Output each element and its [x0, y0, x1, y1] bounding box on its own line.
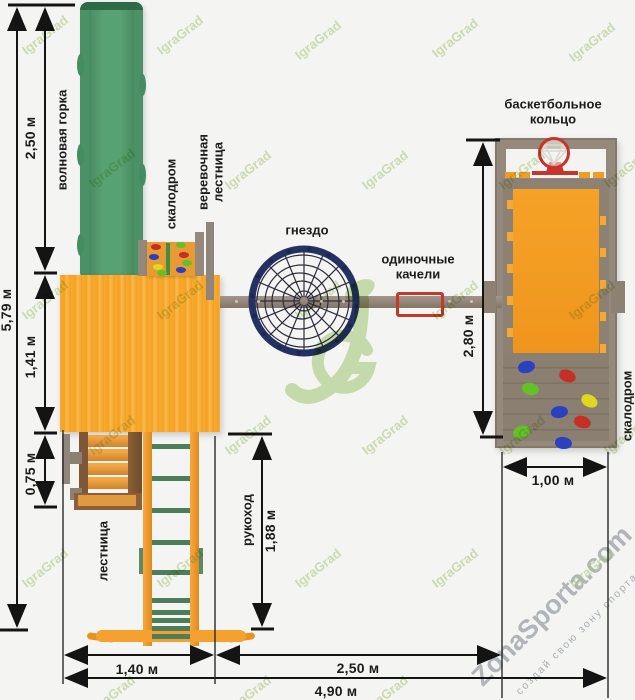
playground-plan-diagram: волновая горка скалодром веревочная лест… — [0, 0, 635, 700]
stairs-post — [62, 434, 70, 484]
tower-crossbar — [502, 179, 610, 189]
beam-bolt — [342, 300, 345, 303]
ramp-tab — [507, 328, 513, 337]
monkey-bars-rung — [152, 626, 190, 631]
beam-connector — [611, 281, 625, 313]
stairs-bottom-tread — [78, 495, 136, 506]
rope-ladder-pole — [206, 222, 214, 300]
ramp-tab — [600, 248, 606, 257]
backboard-bar — [532, 171, 578, 175]
igragrad-watermark: IgraGrad — [292, 17, 344, 62]
beam-bolt — [320, 300, 323, 303]
nest-label: гнездо — [285, 224, 328, 239]
tower-rail — [599, 189, 609, 353]
climbing-board-post — [195, 232, 204, 276]
igragrad-watermark: IgraGrad — [222, 147, 274, 192]
dim-total-width-label: 4,90 м — [315, 684, 358, 700]
climbing-hold — [182, 260, 192, 266]
climbing-hold — [176, 267, 186, 273]
climbing-hold — [179, 252, 189, 258]
slide-wave-bump — [77, 54, 84, 76]
basketball-label: баскетбольное кольцо — [481, 97, 626, 126]
backboard-dash — [593, 172, 604, 178]
wave-slide-label: волновая горка — [56, 90, 71, 191]
backboard-dash — [579, 172, 590, 178]
monkey-bars-label: рукоход — [241, 494, 256, 546]
climbing-wall-left-label: скалодром — [165, 159, 180, 229]
igragrad-watermark: IgraGrad — [566, 19, 618, 64]
climbing-hold — [149, 254, 159, 260]
climbing-hold — [176, 242, 186, 248]
wave-slide — [80, 2, 143, 276]
monkey-bars-rail — [143, 432, 152, 646]
stairs-tread — [88, 463, 128, 475]
slide-bed — [89, 9, 134, 276]
slide-wave-bump — [139, 74, 146, 96]
slide-wave-bump — [139, 164, 146, 186]
ramp-tab — [600, 280, 606, 289]
monkey-bars-rail — [190, 432, 199, 646]
igragrad-watermark: IgraGrad — [292, 545, 344, 590]
monkey-bars-rung — [152, 508, 190, 513]
dim-tower-depth-label: 2,80 м — [461, 315, 477, 358]
single-swing — [396, 292, 444, 317]
beam-connector — [484, 281, 496, 313]
zonasporta-watermark: ZonaSporta.com — [466, 520, 635, 693]
tower-ramp — [513, 189, 599, 353]
monkey-bars-rung — [152, 476, 190, 481]
ramp-tab — [507, 264, 513, 273]
beam-bolt — [448, 300, 451, 303]
dim-slide-label: 2,50 м — [23, 117, 39, 160]
monkey-bars-rung — [152, 610, 190, 615]
backboard-dash — [519, 172, 530, 178]
ramp-tab — [507, 296, 513, 305]
ramp-tab — [600, 312, 606, 321]
ramp-tab — [507, 232, 513, 241]
basketball-hoop — [536, 135, 572, 171]
monkey-bars-bracket — [139, 548, 143, 574]
monkey-bars-bracket — [199, 548, 203, 574]
monkey-bars-rung — [152, 540, 190, 545]
igragrad-watermark: IgraGrad — [429, 15, 481, 60]
igragrad-watermark: IgraGrad — [19, 12, 71, 57]
beam-bolt — [257, 300, 260, 303]
ramp-tab — [600, 344, 606, 353]
stairs-label: лестница — [97, 521, 112, 581]
slide-wave-bump — [77, 234, 84, 256]
ramp-tab — [507, 200, 513, 209]
beam-bolt — [235, 300, 238, 303]
stairs-tread — [88, 435, 128, 447]
monkey-bars-rung — [152, 444, 190, 449]
slide-top-cap — [80, 2, 143, 10]
slide-wave-bump — [77, 144, 84, 166]
monkey-bars-rung — [152, 598, 190, 603]
monkey-bars-rung — [152, 570, 190, 575]
climbing-board-post — [138, 240, 147, 276]
platform — [60, 275, 220, 432]
dim-monkey-bars-label: 1,88 м — [263, 510, 279, 553]
monkey-bars-rung — [152, 634, 190, 639]
beam-bolt — [470, 300, 473, 303]
zonasporta-tagline-watermark: создай свою зону спорта — [514, 571, 635, 698]
igragrad-watermark: IgraGrad — [19, 545, 71, 590]
climbing-hold — [157, 270, 167, 276]
dim-swing-span-label: 2,50 м — [337, 661, 380, 677]
igragrad-watermark: IgraGrad — [429, 545, 481, 590]
stairs-tread — [88, 477, 128, 489]
dim-tower-width-label: 1,00 м — [532, 473, 575, 489]
igragrad-watermark: IgraGrad — [154, 12, 206, 57]
stairs-block — [70, 452, 82, 464]
single-swing-label: одиночные качели — [362, 252, 474, 281]
climbing-wall-right-label: скалодром — [621, 371, 635, 441]
rope-ladder-label: веревочная лестница — [196, 130, 225, 214]
climbing-hold — [151, 244, 161, 250]
igragrad-watermark: IgraGrad — [222, 672, 274, 700]
dim-total-height-label: 5,79 м — [0, 289, 15, 332]
monkey-bars-rung — [152, 618, 190, 623]
dim-stairs-depth-label: 0,75 м — [23, 453, 39, 496]
backboard-dash — [505, 172, 516, 178]
stairs-tread — [88, 449, 128, 461]
dim-base-width-label: 1,40 м — [116, 662, 159, 678]
climbing-board-strip — [166, 243, 170, 275]
igragrad-watermark: IgraGrad — [222, 412, 274, 457]
igragrad-watermark: IgraGrad — [359, 412, 411, 457]
igragrad-watermark: IgraGrad — [359, 147, 411, 192]
dim-platform-depth-label: 1,41 м — [23, 336, 39, 379]
igragrad-watermark: IgraGrad — [566, 545, 618, 590]
ramp-tab — [600, 216, 606, 225]
